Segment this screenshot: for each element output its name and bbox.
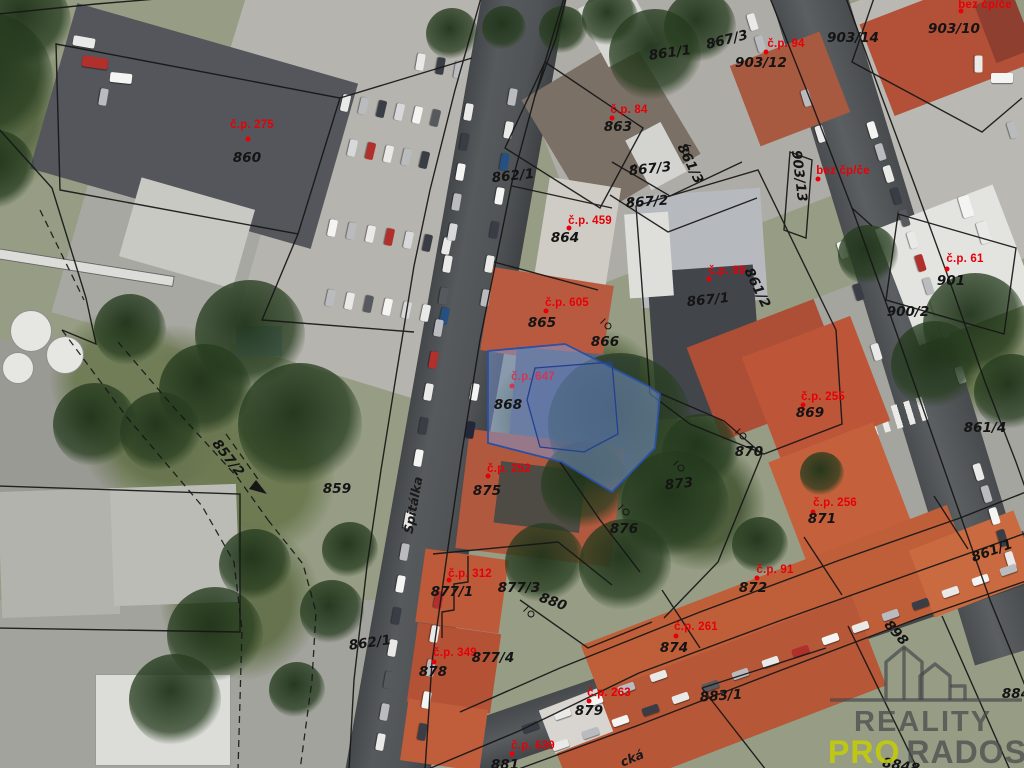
house-number-dot xyxy=(510,384,515,389)
house-number-label: č.p. 275 xyxy=(230,119,274,131)
street-name-label: cká xyxy=(618,747,646,768)
house-number-dot xyxy=(764,50,769,55)
parcel-number-label: 883/1 xyxy=(699,687,743,706)
parcel-number-label: 857/2 xyxy=(209,436,248,479)
parcel-number-label: 864 xyxy=(551,230,579,246)
parcel-number-label: 866 xyxy=(591,334,619,350)
parcel-number-label: 872 xyxy=(739,580,767,596)
parcel-number-label: 861/3 xyxy=(673,141,706,186)
parcel-number-label: 900/2 xyxy=(887,304,930,320)
house-number-label: č.p. 261 xyxy=(674,621,718,633)
parcel-number-label: 867/1 xyxy=(686,290,730,310)
slope-check-symbol: ✓ xyxy=(627,197,635,208)
parcel-number-label: 903/13 xyxy=(788,149,810,202)
parcel-number-label: 870 xyxy=(735,444,763,460)
house-number-label: bez čp/če xyxy=(816,165,870,177)
house-number-label: č.p. 312 xyxy=(448,568,492,580)
parcel-number-label: 878 xyxy=(419,664,447,680)
house-number-dot xyxy=(246,137,251,142)
house-number-label: č.p. 255 xyxy=(801,391,845,403)
house-number-dot xyxy=(707,277,712,282)
garden-symbol xyxy=(740,433,747,440)
house-number-label: č.p. 263 xyxy=(587,687,631,699)
parcel-number-label: 874 xyxy=(660,640,688,656)
house-number-dot xyxy=(945,267,950,272)
parcel-number-label: 862/1 xyxy=(491,166,535,186)
house-number-label: č.p. 647 xyxy=(511,371,555,383)
parcel-number-label: 880 xyxy=(537,590,569,615)
parcel-number-label: 903/12 xyxy=(735,55,787,71)
house-number-label: č.p. 639 xyxy=(511,740,555,752)
house-number-dot xyxy=(544,309,549,314)
parcel-number-label: 861/1 xyxy=(648,42,692,64)
parcel-number-label: 875 xyxy=(473,483,501,499)
parcel-number-label: 898 xyxy=(881,617,912,649)
house-number-dot xyxy=(447,578,452,583)
house-number-dot xyxy=(959,9,964,14)
cadastral-map[interactable]: č.p. 275č.p. 84č.p. 94bez čp/čebez čp/če… xyxy=(0,0,1024,768)
house-number-label: bez čp/če xyxy=(958,0,1012,11)
garden-symbol xyxy=(605,323,612,330)
parcel-number-label: 877/1 xyxy=(431,584,474,600)
house-number-label: č.p. 459 xyxy=(568,215,612,227)
parcel-number-label: 881 xyxy=(491,757,519,768)
parcel-number-label: 861/1 xyxy=(969,536,1014,566)
parcel-number-label: 8848 xyxy=(881,755,921,768)
house-number-label: č.p. 91 xyxy=(756,564,793,576)
garden-symbol xyxy=(623,509,630,516)
garden-symbol xyxy=(678,465,685,472)
house-number-label: č.p. 94 xyxy=(767,38,804,50)
parcel-number-label: 877/3 xyxy=(498,580,541,596)
map-labels-layer: č.p. 275č.p. 84č.p. 94bez čp/čebez čp/če… xyxy=(0,0,1024,768)
parcel-number-label: 903/14 xyxy=(827,30,879,46)
house-number-dot xyxy=(510,752,515,757)
parcel-number-label: 861/2 xyxy=(740,265,773,310)
parcel-number-label: 869 xyxy=(796,405,824,421)
house-number-label: č.p. 605 xyxy=(545,297,589,309)
house-number-dot xyxy=(486,474,491,479)
parcel-number-label: 901 xyxy=(937,273,965,289)
parcel-number-label: 903/10 xyxy=(928,21,980,37)
parcel-number-label: 861/4 xyxy=(964,420,1007,436)
parcel-number-label: 862/1 xyxy=(348,632,392,654)
parcel-number-label: 859 xyxy=(323,481,351,497)
house-number-label: č.p. 89 xyxy=(708,265,745,277)
garden-symbol xyxy=(528,611,535,618)
parcel-number-label: 871 xyxy=(808,511,836,527)
parcel-number-label: 876 xyxy=(610,521,638,537)
parcel-number-label: 860 xyxy=(233,150,261,166)
house-number-label: č.p. 252 xyxy=(487,463,531,475)
house-number-label: č.p. 256 xyxy=(813,497,857,509)
parcel-number-label: 873 xyxy=(664,475,694,494)
parcel-number-label: 863 xyxy=(604,119,632,135)
slope-check-symbol: ✓ xyxy=(629,163,637,174)
house-number-label: č.p. 84 xyxy=(610,104,647,116)
street-name-label: Špitálka xyxy=(401,475,426,534)
parcel-number-label: 868 xyxy=(494,397,522,413)
house-number-dot xyxy=(816,177,821,182)
house-number-label: č.p. 349 xyxy=(433,647,477,659)
parcel-number-label: 879 xyxy=(575,703,603,719)
parcel-number-label: 884 xyxy=(1002,686,1024,702)
house-number-dot xyxy=(674,634,679,639)
house-number-label: č.p. 61 xyxy=(946,253,983,265)
parcel-number-label: 877/4 xyxy=(472,650,515,666)
parcel-number-label: 865 xyxy=(528,315,556,331)
